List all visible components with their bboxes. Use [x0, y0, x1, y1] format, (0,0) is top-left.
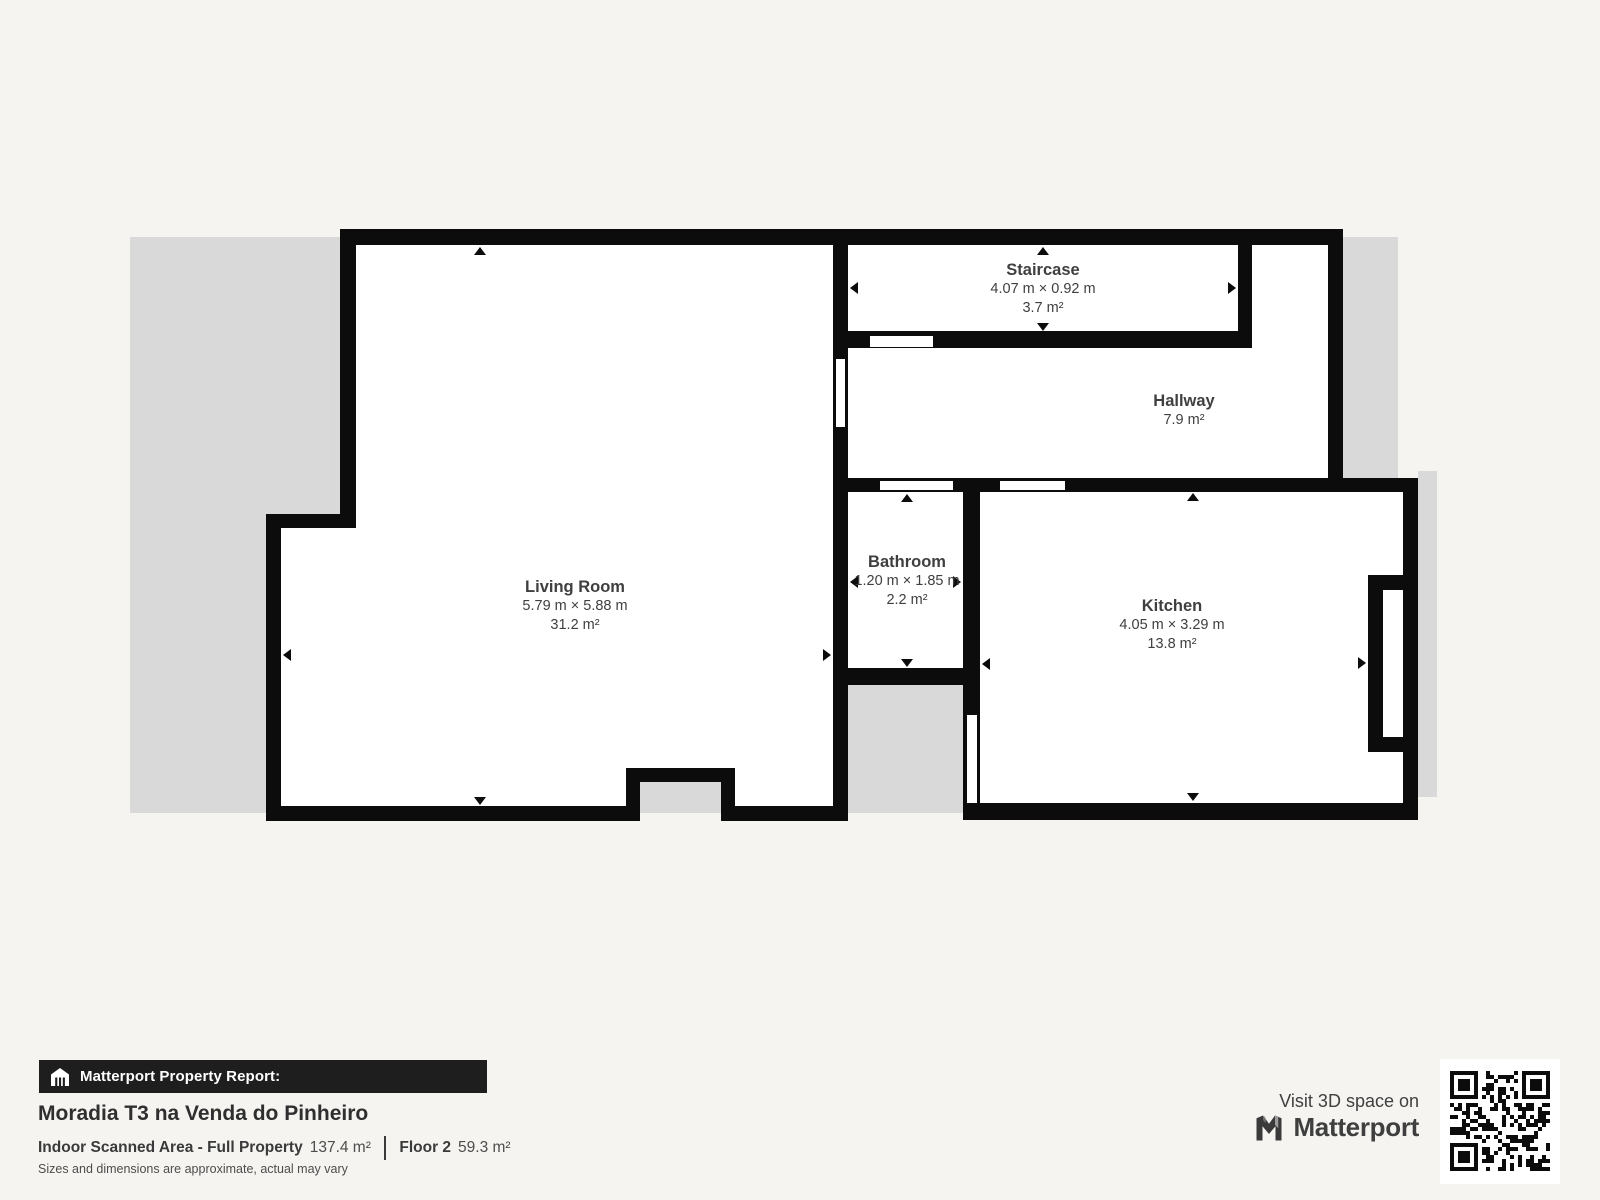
shadow-left-lower: [130, 519, 270, 813]
divider: [384, 1136, 387, 1160]
dimension-arrow-living-top: [474, 247, 486, 255]
dimension-arrow-staircase-right: [1228, 282, 1236, 294]
wall-left-lower: [266, 514, 281, 821]
dimension-arrow-living-right: [823, 649, 831, 661]
wall-notch-cap: [626, 768, 735, 782]
wall-staircase-right: [1238, 245, 1252, 331]
room-name: Staircase: [990, 260, 1095, 280]
door-opening-kitchen-hallway: [1000, 481, 1065, 490]
wall-left-upper: [340, 229, 356, 528]
room-corridor: [1252, 245, 1328, 348]
room-area: 13.8 m²: [1119, 635, 1224, 654]
dimension-arrow-kitchen-top: [1187, 493, 1199, 501]
room-dimensions: 1.20 m × 1.85 m: [854, 572, 959, 591]
wall-kitchen-right: [1403, 478, 1418, 820]
house-icon: [50, 1067, 70, 1087]
wall-recess-bottom: [1368, 737, 1403, 752]
door-opening-kitchen-lower: [967, 715, 977, 803]
wall-bottom-right: [721, 806, 848, 821]
dimension-arrow-living-left: [283, 649, 291, 661]
dimension-arrow-staircase-left: [850, 282, 858, 294]
dimension-arrow-staircase-bottom: [1037, 323, 1049, 331]
matterport-wordmark: Matterport: [1293, 1112, 1419, 1143]
area-info-line: Indoor Scanned Area - Full Property 137.…: [38, 1136, 511, 1160]
dimension-arrow-kitchen-left: [982, 658, 990, 670]
wall-kitchen-bottom: [963, 803, 1418, 820]
wall-bathroom-bottom: [833, 668, 980, 685]
floor-value: 59.3 m²: [458, 1139, 511, 1157]
room-dimensions: 5.79 m × 5.88 m: [522, 597, 627, 616]
room-area: 31.2 m²: [522, 616, 627, 635]
qr-pattern: [1450, 1071, 1550, 1171]
qr-code: [1440, 1059, 1560, 1184]
shadow-middle: [848, 685, 966, 813]
door-opening-living-hallway: [836, 359, 845, 427]
dimension-arrow-kitchen-right: [1358, 657, 1366, 669]
room-living-upper: [356, 245, 833, 528]
room-label-bathroom: Bathroom 1.20 m × 1.85 m 2.2 m²: [854, 552, 959, 610]
matterport-logo: Matterport: [1254, 1112, 1419, 1143]
wall-recess-top: [1368, 575, 1403, 590]
room-name: Bathroom: [854, 552, 959, 572]
room-living-lower: [281, 514, 833, 806]
report-banner: Matterport Property Report:: [39, 1060, 487, 1093]
room-area: 7.9 m²: [1153, 411, 1214, 430]
dimension-arrow-staircase-top: [1037, 247, 1049, 255]
report-banner-label: Matterport Property Report:: [80, 1068, 280, 1085]
room-name: Hallway: [1153, 391, 1214, 411]
door-opening-bathroom: [880, 481, 953, 490]
floor-label: Floor 2: [399, 1139, 451, 1157]
room-label-kitchen: Kitchen 4.05 m × 3.29 m 13.8 m²: [1119, 596, 1224, 654]
wall-outer-right: [1328, 229, 1343, 492]
wall-living-right: [833, 229, 848, 821]
dimension-arrow-bathroom-top: [901, 494, 913, 502]
dimension-arrow-kitchen-bottom: [1187, 793, 1199, 801]
room-area: 2.2 m²: [854, 591, 959, 610]
room-area: 3.7 m²: [990, 299, 1095, 318]
dimension-arrow-bathroom-bottom: [901, 659, 913, 667]
room-label-hallway: Hallway 7.9 m²: [1153, 391, 1214, 430]
matterport-m-icon: [1254, 1113, 1284, 1143]
room-label-staircase: Staircase 4.07 m × 0.92 m 3.7 m²: [990, 260, 1095, 318]
room-hallway: [848, 348, 1328, 478]
property-title: Moradia T3 na Venda do Pinheiro: [38, 1102, 368, 1126]
wall-recess-inner: [1368, 575, 1383, 752]
shadow-right-lower: [1418, 471, 1437, 797]
room-dimensions: 4.05 m × 3.29 m: [1119, 616, 1224, 635]
scanned-area-label: Indoor Scanned Area - Full Property: [38, 1139, 303, 1157]
dimension-arrow-living-bottom: [474, 797, 486, 805]
door-opening-staircase: [870, 336, 933, 347]
room-dimensions: 4.07 m × 0.92 m: [990, 280, 1095, 299]
shadow-notch: [640, 782, 721, 813]
disclaimer-text: Sizes and dimensions are approximate, ac…: [38, 1162, 348, 1176]
room-name: Living Room: [522, 577, 627, 597]
shadow-left-upper: [130, 237, 345, 519]
room-name: Kitchen: [1119, 596, 1224, 616]
floorplan-report-page: Living Room 5.79 m × 5.88 m 31.2 m² Stai…: [0, 0, 1600, 1200]
wall-bottom-left: [266, 806, 640, 821]
visit-3d-label: Visit 3D space on: [1279, 1091, 1419, 1112]
scanned-area-value: 137.4 m²: [310, 1139, 371, 1157]
shadow-right-upper: [1343, 237, 1398, 478]
room-label-living-room: Living Room 5.79 m × 5.88 m 31.2 m²: [522, 577, 627, 635]
